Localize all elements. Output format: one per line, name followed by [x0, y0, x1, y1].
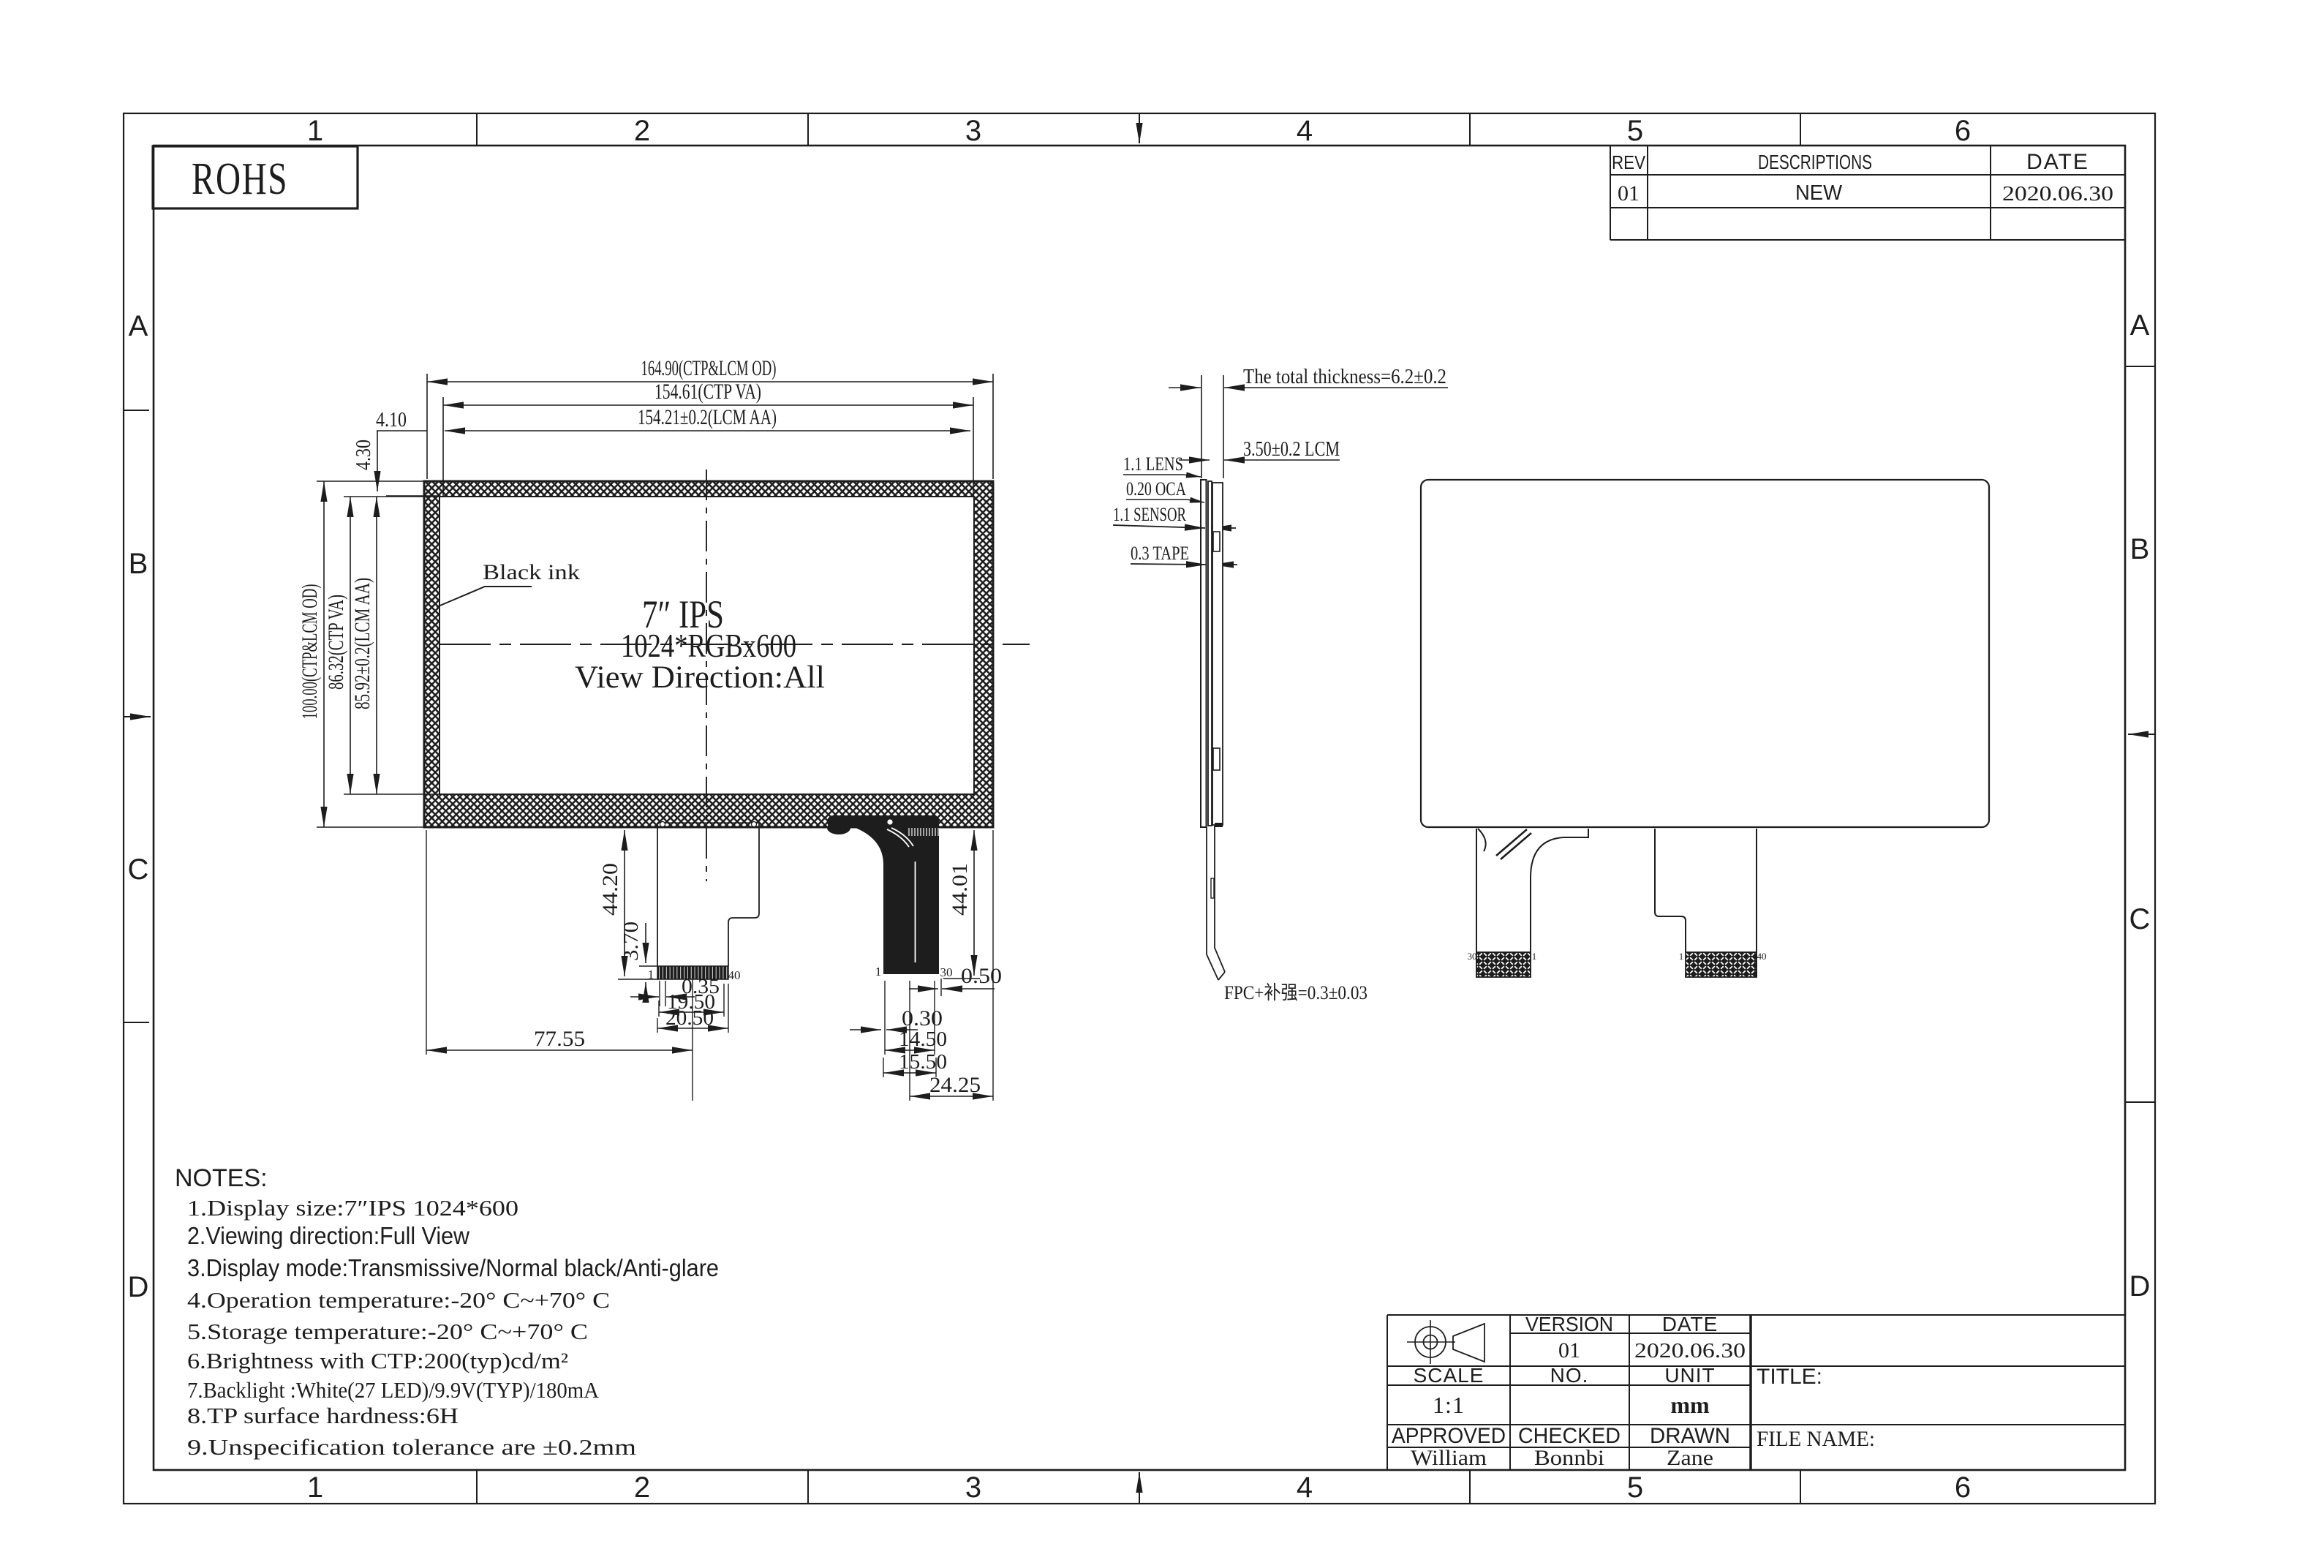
svg-text:mm: mm: [1670, 1392, 1710, 1418]
svg-text:Zane: Zane: [1667, 1446, 1713, 1470]
svg-text:D: D: [2129, 1270, 2151, 1303]
svg-text:0.30: 0.30: [902, 1006, 943, 1030]
svg-text:3.50±0.2 LCM: 3.50±0.2 LCM: [1243, 438, 1340, 461]
svg-text:30: 30: [1468, 951, 1477, 962]
svg-text:DATE: DATE: [2026, 150, 2089, 174]
svg-text:8.TP surface hardness:6H: 8.TP surface hardness:6H: [187, 1403, 459, 1428]
svg-text:01: 01: [1558, 1338, 1580, 1362]
svg-text:24.25: 24.25: [929, 1073, 981, 1097]
svg-text:ROHS: ROHS: [192, 154, 288, 204]
svg-text:D: D: [128, 1271, 149, 1303]
svg-text:5: 5: [1627, 1471, 1643, 1504]
svg-text:1024*RGBx600: 1024*RGBx600: [621, 627, 796, 664]
svg-text:APPROVED: APPROVED: [1392, 1424, 1506, 1448]
svg-text:0.20 OCA: 0.20 OCA: [1126, 478, 1186, 500]
svg-text:4: 4: [1297, 1471, 1313, 1504]
svg-text:2.Viewing direction:Full View: 2.Viewing direction:Full View: [187, 1222, 469, 1249]
svg-text:1.Display size:7″IPS 1024*600: 1.Display size:7″IPS 1024*600: [187, 1195, 518, 1221]
svg-text:4: 4: [1297, 115, 1313, 147]
svg-text:REV: REV: [1612, 151, 1646, 173]
svg-text:1: 1: [1532, 951, 1537, 962]
svg-text:3.70: 3.70: [620, 921, 643, 961]
svg-text:0.3 TAPE: 0.3 TAPE: [1131, 543, 1189, 564]
svg-text:Black ink: Black ink: [483, 560, 580, 584]
svg-text:1: 1: [1679, 951, 1684, 962]
svg-text:A: A: [2130, 309, 2150, 342]
svg-text:40: 40: [728, 968, 741, 982]
svg-text:FPC+补强=0.3±0.03: FPC+补强=0.3±0.03: [1224, 982, 1367, 1003]
svg-text:The total thickness=6.2±0.2: The total thickness=6.2±0.2: [1243, 366, 1446, 388]
svg-text:20.50: 20.50: [665, 1007, 714, 1030]
svg-text:85.92±0.2(LCM AA): 85.92±0.2(LCM AA): [350, 578, 374, 709]
svg-text:4.30: 4.30: [352, 440, 375, 470]
svg-text:VERSION: VERSION: [1525, 1313, 1613, 1335]
svg-text:1: 1: [307, 1471, 323, 1504]
svg-text:1.1 SENSOR: 1.1 SENSOR: [1113, 504, 1186, 525]
svg-text:164.90(CTP&LCM OD): 164.90(CTP&LCM OD): [641, 356, 777, 380]
svg-text:2: 2: [634, 115, 650, 147]
svg-text:C: C: [2129, 903, 2151, 935]
svg-text:40: 40: [1757, 951, 1767, 962]
svg-text:CHECKED: CHECKED: [1518, 1424, 1621, 1448]
svg-text:5: 5: [1627, 115, 1643, 147]
svg-text:3: 3: [965, 1471, 981, 1504]
svg-text:UNIT: UNIT: [1664, 1364, 1715, 1387]
svg-text:3: 3: [965, 115, 981, 147]
svg-text:6: 6: [1955, 1471, 1971, 1504]
svg-text:1:1: 1:1: [1433, 1392, 1465, 1418]
svg-text:C: C: [128, 853, 149, 886]
svg-text:View Direction:All: View Direction:All: [575, 660, 825, 695]
svg-text:NEW: NEW: [1795, 181, 1843, 205]
svg-text:154.21±0.2(LCM AA): 154.21±0.2(LCM AA): [638, 405, 777, 429]
svg-text:6: 6: [1955, 115, 1971, 147]
svg-text:DESCRIPTIONS: DESCRIPTIONS: [1758, 151, 1872, 173]
svg-text:15.50: 15.50: [899, 1051, 947, 1074]
svg-text:44.01: 44.01: [948, 863, 972, 916]
svg-text:4.Operation temperature:-20° C: 4.Operation temperature:-20° C~+70° C: [187, 1287, 610, 1313]
svg-text:9.Unspecification tolerance ar: 9.Unspecification tolerance are ±0.2mm: [187, 1434, 636, 1460]
svg-text:77.55: 77.55: [534, 1027, 585, 1051]
svg-text:5.Storage temperature:-20° C~+: 5.Storage temperature:-20° C~+70° C: [187, 1319, 588, 1344]
svg-text:7.Backlight :White(27 LED)/9.9: 7.Backlight :White(27 LED)/9.9V(TYP)/180…: [187, 1377, 600, 1403]
svg-text:2020.06.30: 2020.06.30: [2002, 182, 2113, 206]
svg-text:44.20: 44.20: [598, 863, 622, 916]
svg-text:4.10: 4.10: [376, 409, 407, 431]
svg-text:FILE NAME:: FILE NAME:: [1757, 1427, 1875, 1451]
svg-text:86.32(CTP VA): 86.32(CTP VA): [324, 595, 348, 690]
svg-text:0.50: 0.50: [961, 964, 1002, 988]
svg-text:1.1 LENS: 1.1 LENS: [1123, 453, 1183, 475]
svg-text:DRAWN: DRAWN: [1650, 1424, 1730, 1448]
svg-text:SCALE: SCALE: [1414, 1364, 1484, 1387]
svg-text:1: 1: [875, 965, 882, 979]
svg-text:1: 1: [307, 115, 323, 147]
svg-text:2: 2: [634, 1471, 650, 1504]
svg-text:B: B: [2130, 533, 2150, 565]
svg-text:01: 01: [1618, 181, 1640, 206]
svg-text:2020.06.30: 2020.06.30: [1634, 1339, 1746, 1362]
svg-text:100.00(CTP&LCM OD): 100.00(CTP&LCM OD): [298, 584, 322, 720]
svg-text:154.61(CTP VA): 154.61(CTP VA): [654, 380, 761, 404]
svg-text:6.Brightness with CTP:200(typ): 6.Brightness with CTP:200(typ)cd/m²: [187, 1348, 568, 1373]
svg-text:3.Display mode:Transmissive/No: 3.Display mode:Transmissive/Normal black…: [187, 1254, 719, 1281]
svg-text:30: 30: [940, 965, 953, 979]
svg-text:NOTES:: NOTES:: [175, 1164, 268, 1192]
svg-text:William: William: [1411, 1446, 1487, 1470]
svg-text:B: B: [129, 548, 148, 580]
svg-text:DATE: DATE: [1662, 1313, 1719, 1335]
svg-text:Bonnbi: Bonnbi: [1534, 1446, 1604, 1470]
svg-text:TITLE:: TITLE:: [1757, 1365, 1822, 1389]
svg-text:14.50: 14.50: [899, 1028, 947, 1051]
svg-text:NO.: NO.: [1550, 1364, 1589, 1387]
svg-text:A: A: [129, 310, 148, 342]
